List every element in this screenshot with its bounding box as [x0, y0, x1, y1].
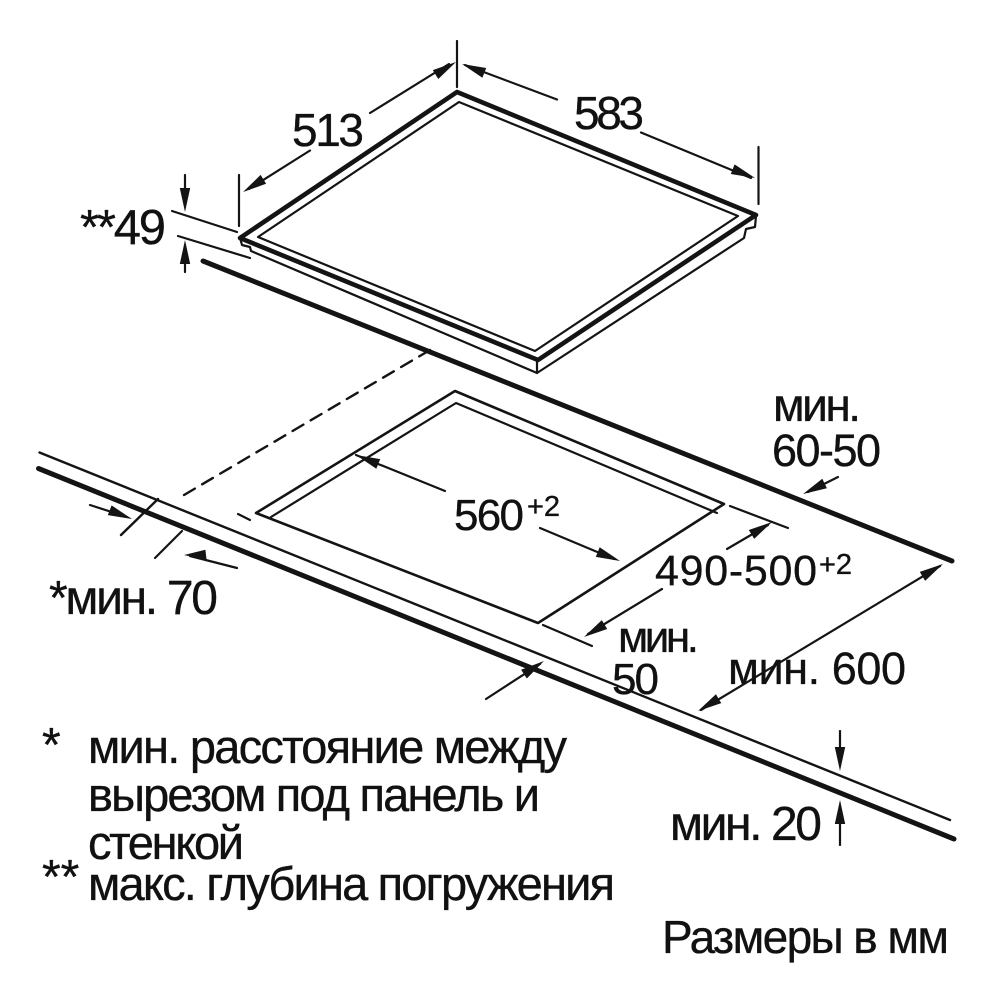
svg-text:макс. глубина погружения: макс. глубина погружения	[88, 857, 615, 910]
svg-text:вырезом под панель и: вырезом под панель и	[88, 768, 540, 821]
svg-text:60-50: 60-50	[772, 425, 881, 476]
svg-text:мин.: мин.	[773, 379, 861, 431]
svg-text:Размеры в мм: Размеры в мм	[662, 911, 949, 963]
svg-text:мин. 20: мин. 20	[670, 798, 822, 851]
svg-text:**: **	[42, 851, 79, 904]
svg-text:мин. 600: мин. 600	[728, 643, 906, 694]
svg-text:мин. расстояние между: мин. расстояние между	[88, 720, 568, 773]
svg-text:560: 560	[454, 491, 524, 540]
svg-text:50: 50	[612, 655, 659, 704]
svg-text:*мин. 70: *мин. 70	[49, 572, 218, 625]
svg-text:**49: **49	[80, 201, 166, 255]
svg-text:*: *	[42, 719, 61, 772]
svg-text:490-500: 490-500	[655, 547, 817, 595]
svg-text:583: 583	[574, 87, 644, 139]
svg-text:+2: +2	[527, 491, 560, 523]
svg-text:+2: +2	[819, 549, 852, 581]
svg-text:513: 513	[292, 104, 364, 156]
